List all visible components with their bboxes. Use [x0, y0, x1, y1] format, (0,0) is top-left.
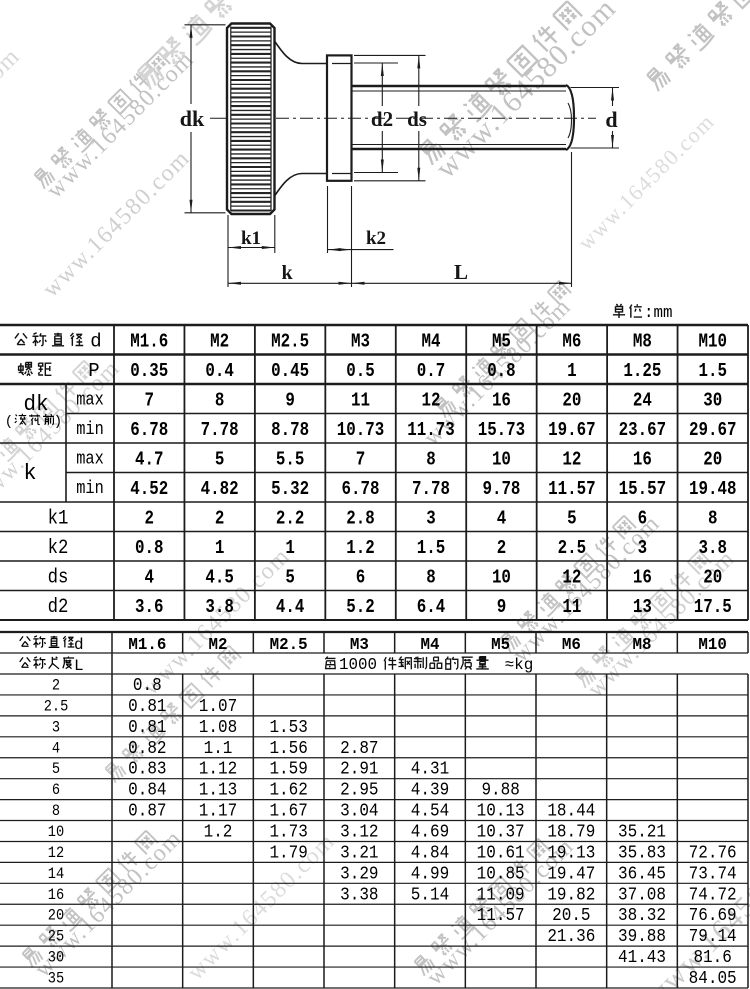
svg-text:72.76: 72.76: [689, 843, 737, 863]
svg-text:12: 12: [562, 566, 581, 588]
svg-text:16: 16: [633, 566, 652, 588]
svg-text:1.12: 1.12: [199, 760, 237, 780]
svg-text:5.14: 5.14: [411, 885, 449, 905]
svg-text:9: 9: [285, 389, 295, 411]
svg-text:3: 3: [426, 507, 436, 529]
svg-text:2.91: 2.91: [340, 760, 378, 780]
svg-text:12: 12: [422, 389, 441, 411]
svg-text:ds: ds: [48, 566, 69, 589]
svg-text:M10: M10: [699, 330, 728, 352]
svg-text:19.13: 19.13: [547, 843, 595, 863]
svg-text:1.08: 1.08: [199, 718, 237, 738]
svg-text:0.45: 0.45: [271, 360, 309, 382]
svg-text:1.59: 1.59: [269, 760, 307, 780]
svg-text:2.5: 2.5: [558, 537, 587, 559]
svg-text:0.83: 0.83: [128, 760, 166, 780]
svg-text:81.6: 81.6: [693, 948, 731, 968]
svg-text:2: 2: [52, 676, 60, 694]
svg-text:30: 30: [48, 949, 64, 967]
svg-text:1.13: 1.13: [199, 781, 237, 801]
svg-text:0.5: 0.5: [346, 360, 375, 382]
svg-text:2: 2: [144, 507, 154, 529]
svg-text:L: L: [74, 657, 84, 675]
svg-text:M5: M5: [491, 636, 510, 655]
svg-text:0.35: 0.35: [130, 360, 168, 382]
svg-text:4.4: 4.4: [276, 596, 305, 618]
svg-text:11: 11: [351, 389, 370, 411]
svg-text:73.74: 73.74: [689, 864, 737, 884]
svg-text:www.164580.com: www.164580.com: [0, 43, 25, 201]
svg-text:3: 3: [52, 718, 60, 736]
svg-text:d: d: [605, 107, 617, 132]
svg-text:M6: M6: [562, 636, 581, 655]
svg-text:13: 13: [633, 596, 652, 618]
svg-text:M2: M2: [209, 636, 228, 655]
svg-text:5: 5: [285, 566, 295, 588]
svg-text:1.07: 1.07: [199, 697, 237, 717]
svg-text:5.5: 5.5: [276, 448, 305, 470]
svg-text:19.47: 19.47: [547, 864, 595, 884]
svg-text:23.67: 23.67: [619, 419, 667, 441]
svg-text:M4: M4: [421, 636, 440, 655]
svg-text:2.5: 2.5: [44, 697, 69, 715]
svg-text:d2: d2: [371, 107, 393, 131]
svg-text:76.69: 76.69: [689, 906, 737, 926]
svg-text:M1.6: M1.6: [130, 330, 168, 352]
svg-text:0.82: 0.82: [128, 739, 166, 759]
svg-text:max: max: [76, 390, 104, 410]
svg-text:2: 2: [497, 537, 507, 559]
svg-text:17.5: 17.5: [694, 596, 732, 618]
svg-text:k: k: [281, 262, 293, 284]
svg-text:3.8: 3.8: [205, 596, 234, 618]
svg-text:36.45: 36.45: [618, 864, 666, 884]
svg-text:10.85: 10.85: [477, 864, 525, 884]
svg-text:4: 4: [144, 566, 154, 588]
svg-text:1.17: 1.17: [199, 802, 237, 822]
svg-text:2.87: 2.87: [340, 739, 378, 759]
svg-text:M2: M2: [210, 330, 229, 352]
svg-text:2.2: 2.2: [276, 507, 305, 529]
svg-text:4.5: 4.5: [205, 566, 234, 588]
svg-text:www.164580.com: www.164580.com: [429, 0, 623, 185]
svg-text:37.08: 37.08: [618, 885, 666, 905]
svg-text:20.5: 20.5: [552, 906, 590, 926]
svg-text:39.88: 39.88: [618, 927, 666, 947]
svg-text:12: 12: [48, 844, 64, 862]
svg-text:16: 16: [492, 389, 511, 411]
svg-text:0.8: 0.8: [487, 360, 516, 382]
svg-text:1.56: 1.56: [269, 739, 307, 759]
svg-text:4.52: 4.52: [130, 478, 168, 500]
svg-text:16: 16: [48, 886, 64, 904]
svg-text:3.8: 3.8: [699, 537, 728, 559]
svg-text:4.99: 4.99: [411, 864, 449, 884]
svg-text:10.13: 10.13: [477, 802, 525, 822]
svg-text:0.81: 0.81: [128, 718, 166, 738]
svg-text:1.53: 1.53: [269, 718, 307, 738]
svg-text:d: d: [90, 330, 101, 352]
svg-text:8: 8: [708, 507, 718, 529]
svg-text:4: 4: [497, 507, 507, 529]
svg-text:0.87: 0.87: [128, 802, 166, 822]
svg-text:19.82: 19.82: [547, 885, 595, 905]
svg-text:35.21: 35.21: [618, 823, 666, 843]
svg-text:21.36: 21.36: [547, 927, 595, 947]
svg-text:4.31: 4.31: [411, 760, 449, 780]
svg-text:4.7: 4.7: [135, 448, 164, 470]
svg-text:0.8: 0.8: [133, 676, 162, 696]
svg-text:1.5: 1.5: [699, 360, 728, 382]
svg-text:6: 6: [638, 507, 648, 529]
svg-text:3.29: 3.29: [340, 864, 378, 884]
svg-text:18.44: 18.44: [547, 802, 595, 822]
svg-text:6: 6: [52, 781, 60, 799]
svg-text:7.78: 7.78: [201, 419, 239, 441]
svg-text:M3: M3: [351, 330, 370, 352]
svg-text:≈kg: ≈kg: [505, 656, 534, 674]
svg-text:15.57: 15.57: [619, 478, 667, 500]
svg-text:0.4: 0.4: [205, 360, 234, 382]
svg-text:1.25: 1.25: [623, 360, 661, 382]
svg-text:8: 8: [52, 802, 60, 820]
svg-text:M6: M6: [562, 330, 581, 352]
svg-text:11: 11: [562, 596, 581, 618]
svg-text:10: 10: [492, 448, 511, 470]
svg-text:M5: M5: [492, 330, 511, 352]
svg-text:d: d: [74, 636, 84, 654]
svg-text:7.78: 7.78: [412, 478, 450, 500]
svg-text:6.4: 6.4: [417, 596, 446, 618]
svg-text:35: 35: [48, 970, 64, 988]
svg-text:1: 1: [215, 537, 225, 559]
svg-text:10: 10: [492, 566, 511, 588]
svg-text:0.84: 0.84: [128, 781, 166, 801]
svg-text:11.57: 11.57: [477, 906, 525, 926]
svg-text:M3: M3: [350, 636, 369, 655]
svg-text:1.2: 1.2: [204, 823, 233, 843]
svg-text:k1: k1: [48, 507, 69, 530]
svg-text:8.78: 8.78: [271, 419, 309, 441]
svg-text:9: 9: [497, 596, 507, 618]
svg-text:16: 16: [633, 448, 652, 470]
svg-text:7: 7: [144, 389, 154, 411]
svg-text:M1.6: M1.6: [128, 636, 166, 655]
svg-text:24: 24: [633, 389, 652, 411]
svg-text:74.72: 74.72: [689, 885, 737, 905]
svg-text:8: 8: [426, 566, 436, 588]
svg-text:max: max: [76, 449, 104, 469]
svg-text:5.32: 5.32: [271, 478, 309, 500]
svg-text:5: 5: [215, 448, 225, 470]
svg-text:3.21: 3.21: [340, 843, 378, 863]
svg-text:M2.5: M2.5: [271, 330, 309, 352]
svg-text:ds: ds: [407, 107, 427, 131]
svg-text:M8: M8: [633, 636, 652, 655]
svg-text:M2.5: M2.5: [270, 636, 308, 655]
svg-text:1.1: 1.1: [204, 739, 233, 759]
svg-text:9.88: 9.88: [481, 781, 519, 801]
svg-text:18.79: 18.79: [547, 823, 595, 843]
svg-text:29.67: 29.67: [689, 419, 737, 441]
svg-text:k1: k1: [241, 228, 261, 249]
svg-text:4.54: 4.54: [411, 802, 449, 822]
svg-text:dk: dk: [180, 106, 205, 131]
svg-text:4.39: 4.39: [411, 781, 449, 801]
svg-text:1.67: 1.67: [269, 802, 307, 822]
svg-text:4.82: 4.82: [201, 478, 239, 500]
svg-text:10.37: 10.37: [477, 823, 525, 843]
svg-text:1.73: 1.73: [269, 823, 307, 843]
svg-text:11.73: 11.73: [407, 419, 455, 441]
svg-text:www.164580.com: www.164580.com: [183, 828, 341, 986]
svg-text:3.6: 3.6: [135, 596, 164, 618]
svg-text:3.12: 3.12: [340, 823, 378, 843]
svg-text:12: 12: [562, 448, 581, 470]
svg-text:10: 10: [48, 823, 64, 841]
svg-text:4.84: 4.84: [411, 843, 449, 863]
svg-text:1.62: 1.62: [269, 781, 307, 801]
svg-text:20: 20: [48, 907, 64, 925]
svg-text:M10: M10: [698, 636, 727, 655]
svg-text:30: 30: [703, 389, 722, 411]
svg-text:5.2: 5.2: [346, 596, 375, 618]
svg-text:2: 2: [215, 507, 225, 529]
svg-text:): ): [54, 414, 62, 430]
svg-text:1000: 1000: [339, 656, 377, 675]
svg-text:11.57: 11.57: [548, 478, 596, 500]
svg-text:min: min: [76, 479, 104, 499]
svg-text:1: 1: [567, 360, 577, 382]
svg-text:6.78: 6.78: [342, 478, 380, 500]
svg-text:10.73: 10.73: [337, 419, 385, 441]
svg-text:11.09: 11.09: [477, 885, 525, 905]
svg-text:25: 25: [48, 928, 64, 946]
svg-text:d2: d2: [48, 596, 69, 619]
svg-text:41.43: 41.43: [618, 948, 666, 968]
svg-text:8: 8: [215, 389, 225, 411]
svg-text:6.78: 6.78: [130, 419, 168, 441]
svg-text:min: min: [76, 420, 104, 440]
svg-text:9.78: 9.78: [482, 478, 520, 500]
svg-text:5: 5: [52, 760, 60, 778]
svg-text:1.5: 1.5: [417, 537, 446, 559]
svg-text:19.67: 19.67: [548, 419, 596, 441]
svg-text:4.69: 4.69: [411, 823, 449, 843]
svg-text:P: P: [88, 360, 99, 382]
svg-text:79.14: 79.14: [689, 927, 737, 947]
svg-text:35.83: 35.83: [618, 843, 666, 863]
svg-text:8: 8: [426, 448, 436, 470]
svg-text:4: 4: [52, 739, 60, 757]
svg-text:20: 20: [703, 448, 722, 470]
svg-text:10.61: 10.61: [477, 843, 525, 863]
svg-text:20: 20: [703, 566, 722, 588]
svg-text:0.7: 0.7: [417, 360, 446, 382]
svg-text:k2: k2: [48, 537, 69, 560]
svg-text:M4: M4: [422, 330, 441, 352]
svg-text:0.8: 0.8: [135, 537, 164, 559]
svg-text:5: 5: [567, 507, 577, 529]
svg-text:1: 1: [285, 537, 295, 559]
svg-text:84.05: 84.05: [689, 969, 737, 989]
svg-text::mm: :mm: [644, 304, 673, 323]
svg-text:20: 20: [562, 389, 581, 411]
svg-text:2.8: 2.8: [346, 507, 375, 529]
svg-text:38.32: 38.32: [618, 906, 666, 926]
svg-text:dk: dk: [24, 392, 49, 417]
svg-text:14: 14: [48, 865, 64, 883]
svg-text:1.2: 1.2: [346, 537, 375, 559]
svg-text:M8: M8: [633, 330, 652, 352]
svg-text:3.38: 3.38: [340, 885, 378, 905]
svg-text:6: 6: [356, 566, 366, 588]
svg-text:1.79: 1.79: [269, 843, 307, 863]
svg-text:0.81: 0.81: [128, 697, 166, 717]
svg-text:3.04: 3.04: [340, 802, 378, 822]
svg-text:19.48: 19.48: [689, 478, 737, 500]
svg-text:L: L: [454, 260, 468, 284]
svg-text:3: 3: [638, 537, 648, 559]
svg-text:www.164580.com: www.164580.com: [573, 108, 719, 254]
svg-text:k: k: [23, 461, 36, 486]
svg-text:2.95: 2.95: [340, 781, 378, 801]
svg-text:15.73: 15.73: [478, 419, 526, 441]
svg-text:k2: k2: [366, 228, 386, 249]
svg-text:(: (: [5, 414, 13, 430]
svg-text:7: 7: [356, 448, 366, 470]
